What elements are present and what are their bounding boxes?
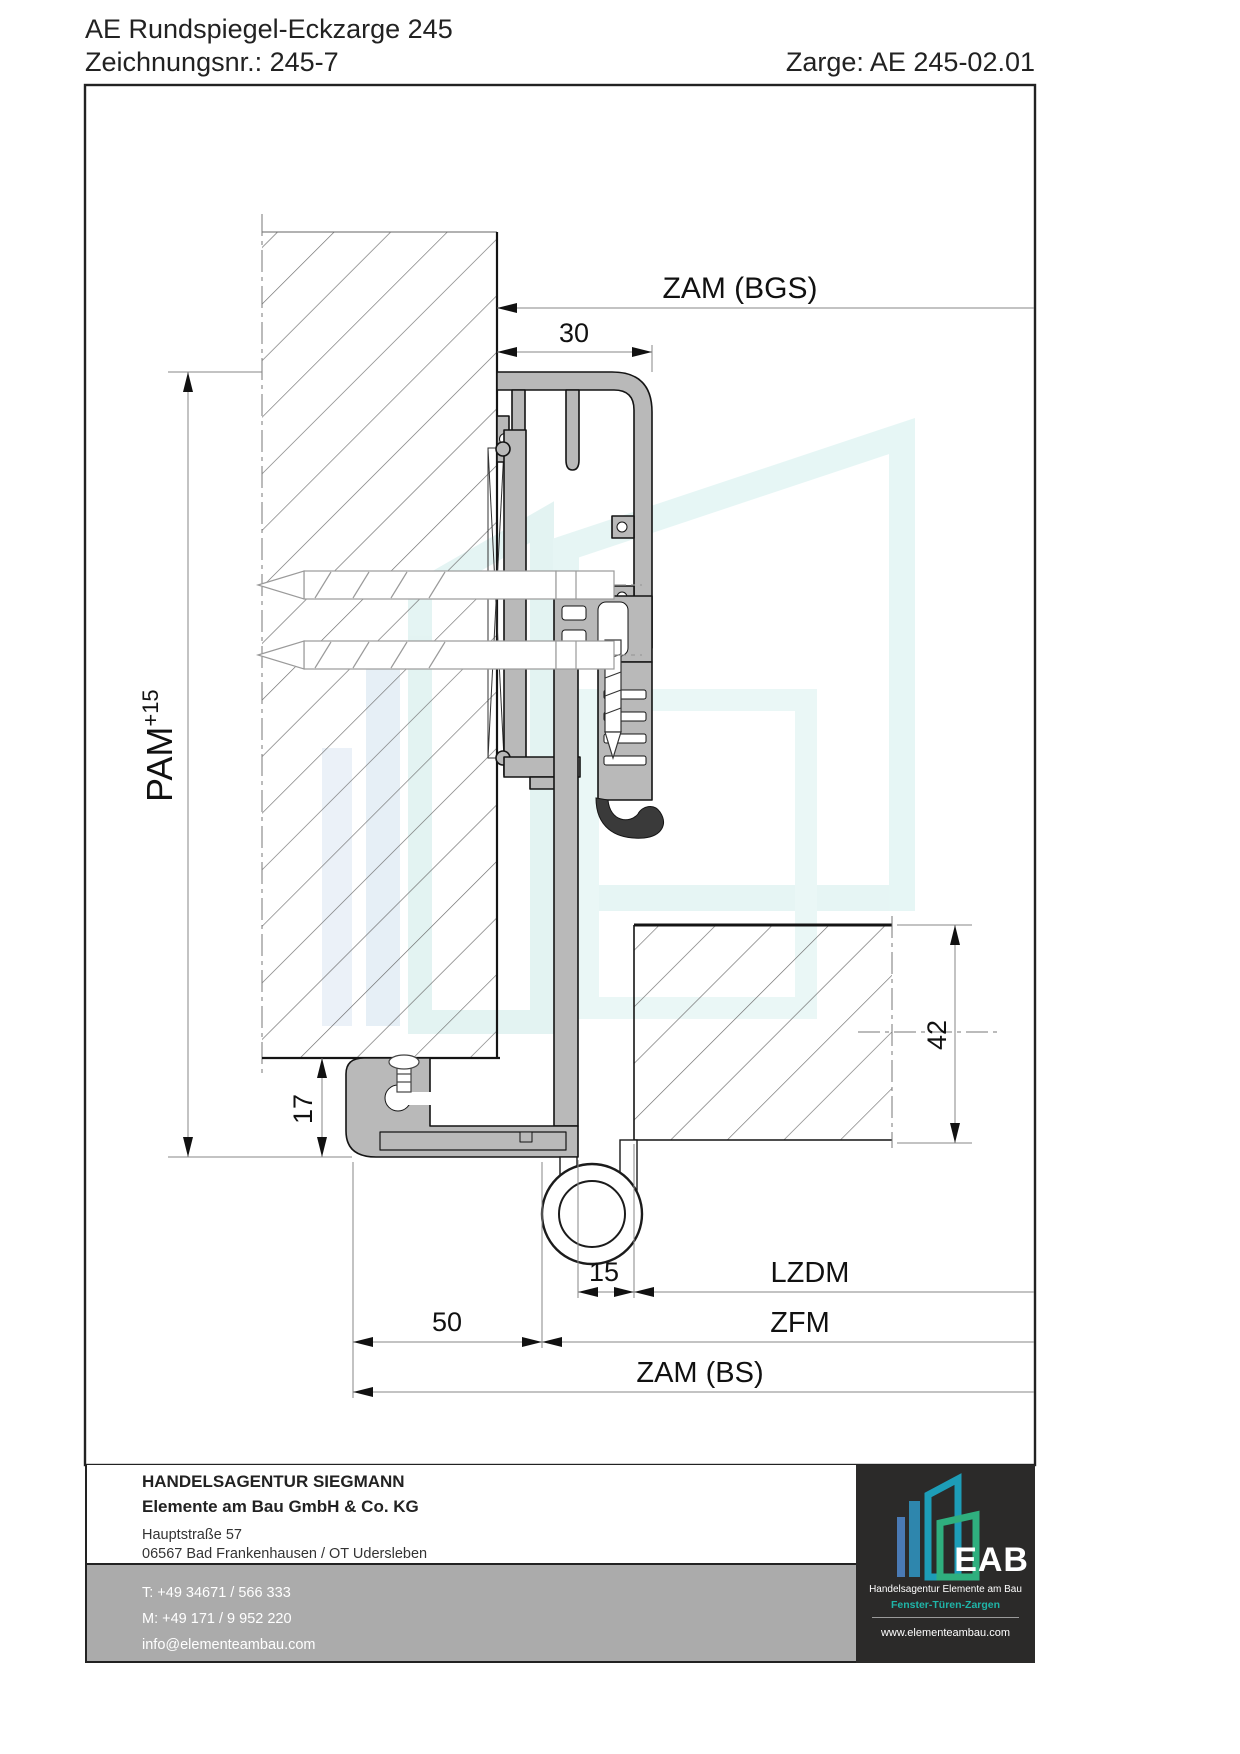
company-name: HANDELSAGENTUR SIEGMANN [142,1472,405,1492]
label-50: 50 [432,1307,462,1337]
label-lzdm: LZDM [771,1257,850,1289]
label-pam: PAM+15 [138,689,180,802]
label-zam-bs: ZAM (BS) [636,1357,763,1389]
logo-tagline: Fenster-Türen-Zargen [856,1599,1035,1611]
address-street: Hauptstraße 57 [142,1527,242,1543]
email-address: info@elementeambau.com [142,1637,316,1653]
logo-subtitle: Handelsagentur Elemente am Bau [856,1584,1035,1595]
label-zam-bgs: ZAM (BGS) [663,272,818,305]
eab-logo-box: EAB Handelsagentur Elemente am Bau Fenst… [856,1465,1035,1663]
logo-website: www.elementeambau.com [856,1627,1035,1639]
hinge-barrel [542,1140,642,1264]
phone-number: T: +49 34671 / 566 333 [142,1585,291,1601]
mobile-number: M: +49 171 / 9 952 220 [142,1611,292,1627]
label-15: 15 [589,1257,619,1287]
logo-text: EAB [954,1541,1029,1580]
logo-divider [872,1617,1019,1618]
company-legal-name: Elemente am Bau GmbH & Co. KG [142,1497,419,1517]
label-30: 30 [559,318,589,348]
address-city: 06567 Bad Frankenhausen / OT Udersleben [142,1546,427,1562]
label-17: 17 [288,1094,318,1124]
door-gasket [596,798,663,838]
label-zfm: ZFM [770,1307,830,1339]
label-42: 42 [922,1020,952,1050]
drawing-sheet: AE Rundspiegel-Eckzarge 245 Zeichnungsnr… [0,0,1240,1754]
